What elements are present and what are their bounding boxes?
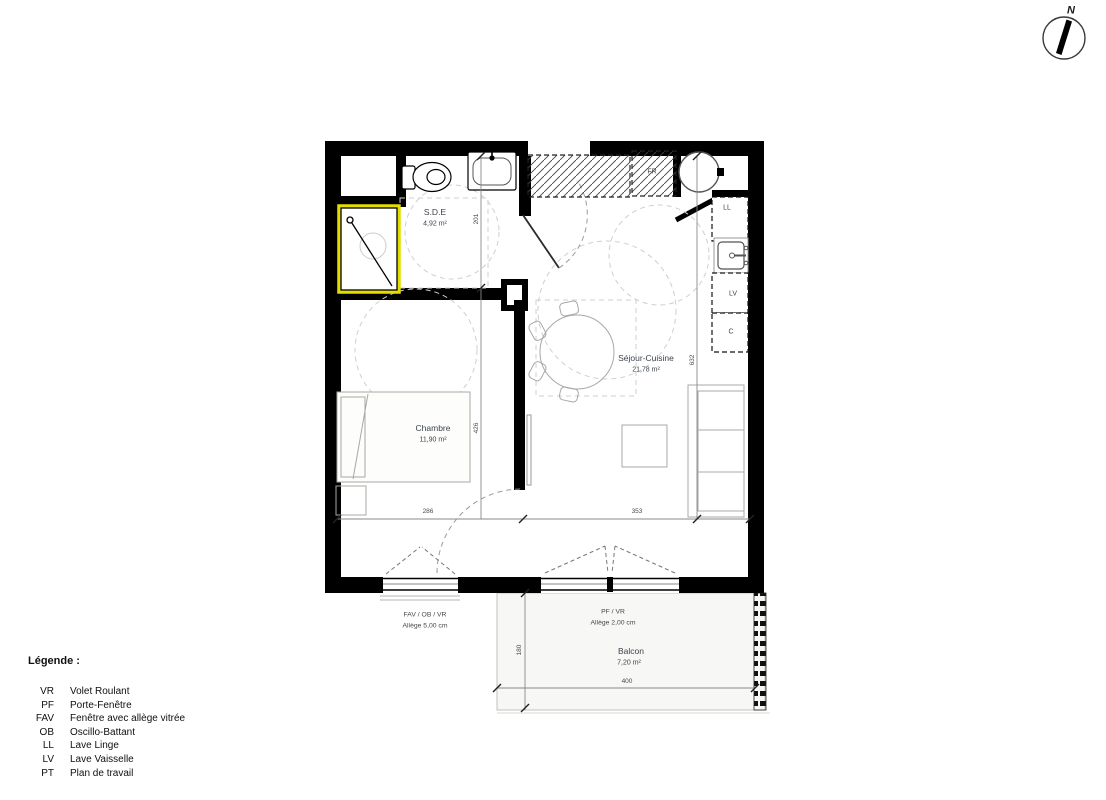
balcony-railing: [754, 593, 766, 710]
toilet: [402, 163, 451, 192]
dim-balcon-width: 400: [622, 679, 633, 686]
room-area-balcon: 7,20 m²: [617, 660, 641, 667]
legend-abbr: FAV: [28, 712, 54, 726]
dim-sde-depth: 201: [474, 214, 481, 225]
doors: [437, 180, 587, 573]
fridge-label: FR: [647, 169, 656, 176]
chambre-door-leaf: [527, 415, 531, 485]
chambre-window-type: FAV / OB / VR: [404, 613, 447, 620]
dim-sejour-depth: 632: [690, 355, 697, 366]
chambre-window: [380, 547, 460, 600]
north-arrow-icon: [1043, 17, 1085, 59]
bed: [337, 392, 470, 482]
legend-item-pf: PF Porte-Fenêtre: [28, 699, 185, 713]
room-label-sde: S.D.E: [424, 208, 446, 217]
legend-item-lv: LV Lave Vaisselle: [28, 753, 185, 767]
legend-abbr: LV: [28, 753, 54, 767]
dim-sejour-width: 353: [632, 509, 643, 516]
washing-machine-label: LL: [723, 205, 731, 212]
legend-item-pt: PT Plan de travail: [28, 767, 185, 781]
legend-abbr: OB: [28, 726, 54, 740]
room-label-chambre: Chambre: [416, 424, 451, 433]
dim-chambre-depth: 426: [474, 423, 481, 434]
coffee-table: [622, 425, 667, 467]
legend: Légende : VR Volet Roulant PF Porte-Fenê…: [28, 655, 185, 780]
water-heater: [679, 152, 724, 192]
sejour-french-window: [541, 546, 679, 593]
worktop-hatch: [528, 155, 630, 197]
legend-label: Fenêtre avec allège vitrée: [70, 712, 185, 726]
entry-door-leaf: [523, 215, 559, 268]
legend-item-fav: FAV Fenêtre avec allège vitrée: [28, 712, 185, 726]
sejour-window-sill: Allège 2,00 cm: [591, 621, 636, 628]
legend-item-ob: OB Oscillo-Battant: [28, 726, 185, 740]
legend-abbr: LL: [28, 739, 54, 753]
legend-abbr: PF: [28, 699, 54, 713]
room-area-sejour: 21,78 m²: [632, 367, 660, 374]
dim-chambre-width: 286: [423, 509, 434, 516]
cupboard-label: C: [728, 329, 733, 336]
shower: [341, 208, 397, 290]
chambre-door-swing: [437, 489, 521, 573]
sejour-window-type: PF / VR: [601, 610, 625, 617]
room-area-sde: 4,92 m²: [423, 221, 447, 228]
legend-item-vr: VR Volet Roulant: [28, 685, 185, 699]
legend-label: Porte-Fenêtre: [70, 699, 185, 713]
legend-label: Plan de travail: [70, 767, 185, 781]
furniture: [336, 300, 744, 517]
legend-label: Volet Roulant: [70, 685, 185, 699]
room-area-chambre: 11,90 m²: [419, 437, 446, 444]
room-label-sejour: Séjour-Cuisine: [618, 354, 674, 363]
legend-label: Oscillo-Battant: [70, 726, 185, 740]
kitchen-sink: [714, 238, 748, 273]
legend-title: Légende :: [28, 655, 185, 667]
legend-item-ll: LL Lave Linge: [28, 739, 185, 753]
dim-balcon-depth: 180: [517, 645, 524, 656]
dishwasher-label: LV: [729, 291, 737, 298]
legend-label: Lave Vaisselle: [70, 753, 185, 767]
chambre-window-sill: Allège 5,00 cm: [403, 624, 448, 631]
room-label-balcon: Balcon: [618, 647, 644, 656]
washbasin: [468, 149, 516, 190]
legend-abbr: PT: [28, 767, 54, 781]
kitchen: [528, 151, 748, 352]
legend-abbr: VR: [28, 685, 54, 699]
sofa: [688, 385, 744, 517]
legend-label: Lave Linge: [70, 739, 185, 753]
north-label: N: [1067, 6, 1075, 17]
floor-plan-page: S.D.E 4,92 m² Chambre 11,90 m² Séjour-Cu…: [0, 0, 1106, 800]
dining-table: [527, 300, 614, 402]
